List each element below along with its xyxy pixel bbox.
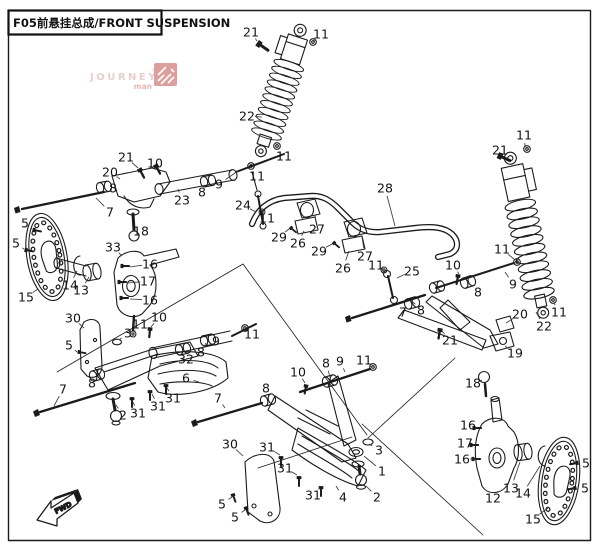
part-callout: 5 <box>582 456 590 471</box>
part-callout: 12 <box>485 491 501 506</box>
bolt-21-top <box>255 40 270 53</box>
part-callout: 21 <box>243 25 259 40</box>
part-callout: 16 <box>142 257 158 272</box>
callout-leader <box>31 228 32 229</box>
part-callout: 21 <box>118 150 134 165</box>
part-callout: 1 <box>378 464 386 479</box>
part-callout: 11 <box>249 169 265 184</box>
part-callout: 23 <box>174 193 190 208</box>
part-callout: 21 <box>492 143 508 158</box>
shock-absorber-top <box>243 19 317 161</box>
callout-leader <box>514 462 520 480</box>
part-callout: 8 <box>417 303 425 318</box>
part-callout: 11 <box>244 327 260 342</box>
part-callout: 17 <box>140 274 156 289</box>
callout-leader <box>223 405 225 408</box>
part-callout: 16 <box>454 452 470 467</box>
part-callout: 7 <box>106 205 114 220</box>
part-callout: 8 <box>88 376 96 391</box>
part-callout: 10 <box>151 310 167 325</box>
part-callout: 11 <box>494 242 510 257</box>
shock-absorber-right <box>494 146 563 322</box>
watermark-subtext: man <box>134 82 152 91</box>
part-callout: 11 <box>356 353 372 368</box>
part-callout: 31 <box>259 440 275 455</box>
part-callout: 33 <box>105 240 121 255</box>
part-callout: 21 <box>442 333 458 348</box>
part-callout: 31 <box>305 488 321 503</box>
part-callout: 7 <box>214 391 222 406</box>
part-callout: 25 <box>404 264 420 279</box>
part-callout: 22 <box>239 109 255 124</box>
part-callout: 26 <box>335 261 351 276</box>
callout-leader <box>226 171 238 179</box>
bearing-13 <box>82 263 103 282</box>
upper-arm-right <box>345 259 520 351</box>
part-callout: 5 <box>231 510 239 525</box>
bearing-13-right <box>513 443 533 461</box>
page-border <box>9 11 591 541</box>
callout-leader <box>54 396 59 406</box>
callout-leader <box>75 350 77 352</box>
part-callout: 8 <box>262 381 270 396</box>
watermark: JOURNEY ® man <box>89 63 177 91</box>
part-callout: 30 <box>65 311 81 326</box>
part-callout: 11 <box>368 258 384 273</box>
part-callout: 15 <box>18 290 34 305</box>
callout-leader <box>315 215 316 221</box>
part-callout: 8 <box>197 345 205 360</box>
part-callout: 5 <box>218 497 226 512</box>
parts-catalog-page: FWD JOURNEY ® man F05前悬挂总成/FRONT SUSPENS… <box>0 0 600 550</box>
washer-3 <box>363 439 373 445</box>
part-callout: 30 <box>222 437 238 452</box>
callout-leader <box>128 282 140 283</box>
part-callout: 5 <box>21 216 29 231</box>
part-callout: 2 <box>373 490 381 505</box>
part-callout: 11 <box>276 149 292 164</box>
part-callout: 19 <box>507 346 523 361</box>
callout-leader <box>505 272 509 277</box>
part-callout: 8 <box>474 285 482 300</box>
mud-guard-30-right <box>245 454 280 522</box>
part-callout: 5 <box>12 236 20 251</box>
fwd-arrow: FWD <box>37 489 82 526</box>
callout-leader <box>96 198 104 206</box>
part-callout: 5 <box>65 338 73 353</box>
callout-leader <box>366 486 371 491</box>
part-callout: 9 <box>509 277 517 292</box>
part-callout: 8 <box>109 181 117 196</box>
snap-ring-14 <box>74 256 81 275</box>
part-callout: 18 <box>133 224 149 239</box>
part-callout: 31 <box>165 391 181 406</box>
nut-11-right-top <box>524 146 531 153</box>
part-callout: 20 <box>102 165 118 180</box>
callout-leader <box>387 196 395 226</box>
part-callout: 10 <box>290 365 306 380</box>
part-callout: 17 <box>457 436 473 451</box>
part-callout: 11 <box>551 305 567 320</box>
part-callout: 31 <box>150 399 166 414</box>
page-title: F05前悬挂总成/FRONT SUSPENSION <box>13 16 230 30</box>
ball-seat-1 <box>349 448 363 457</box>
watermark-logo-icon <box>154 63 177 86</box>
nut-11-right-bottom <box>550 297 557 304</box>
callout-leader <box>130 299 142 300</box>
part-callout: 3 <box>375 443 383 458</box>
part-callout: 5 <box>581 481 589 496</box>
callout-leader <box>22 248 24 249</box>
part-callout: 9 <box>336 354 344 369</box>
part-callout: 7 <box>59 382 67 397</box>
title-block: F05前悬挂总成/FRONT SUSPENSION <box>9 11 231 35</box>
part-callout: 2 <box>119 408 127 423</box>
part-callout: 11 <box>132 317 148 332</box>
part-callout: 13 <box>73 283 89 298</box>
part-callout: 11 <box>259 211 275 226</box>
part-callout: 7 <box>399 305 407 320</box>
brake-disc-right <box>513 435 585 528</box>
part-callout: 29 <box>271 230 287 245</box>
part-callout: 14 <box>515 486 531 501</box>
callout-leader <box>343 368 345 372</box>
part-callout: 16 <box>142 293 158 308</box>
part-callout: 9 <box>215 177 223 192</box>
snap-ring-14-right <box>538 446 545 466</box>
part-callout: 4 <box>339 490 347 505</box>
part-callout: 32 <box>178 352 194 367</box>
part-callout: 9 <box>212 334 220 349</box>
part-callout: 31 <box>277 461 293 476</box>
callout-leader <box>242 510 245 512</box>
part-callout: 20 <box>512 307 528 322</box>
part-callout: 18 <box>465 376 481 391</box>
part-callout: 10 <box>445 258 461 273</box>
part-callout: 8 <box>322 356 330 371</box>
part-callout: 11 <box>516 128 532 143</box>
part-callout: 15 <box>525 512 541 527</box>
part-callout: 16 <box>460 418 476 433</box>
part-callout: 31 <box>130 406 146 421</box>
diagram-canvas: FWD JOURNEY ® man F05前悬挂总成/FRONT SUSPENS… <box>0 0 600 550</box>
part-callout: 22 <box>536 319 552 334</box>
part-callout: 29 <box>311 244 327 259</box>
callout-leader <box>130 265 142 267</box>
part-callout: 28 <box>377 181 393 196</box>
part-callout: 24 <box>235 198 251 213</box>
part-callout: 11 <box>313 27 329 42</box>
callout-leader <box>229 497 232 499</box>
part-callout: 6 <box>182 371 190 386</box>
part-callout: 3 <box>124 326 132 341</box>
callout-leader <box>205 343 206 345</box>
part-callout: 10 <box>147 156 163 171</box>
part-callout: 27 <box>309 222 325 237</box>
part-callout: 8 <box>198 185 206 200</box>
stabilizer-link-25 <box>381 267 397 303</box>
part-callout: 26 <box>290 236 306 251</box>
